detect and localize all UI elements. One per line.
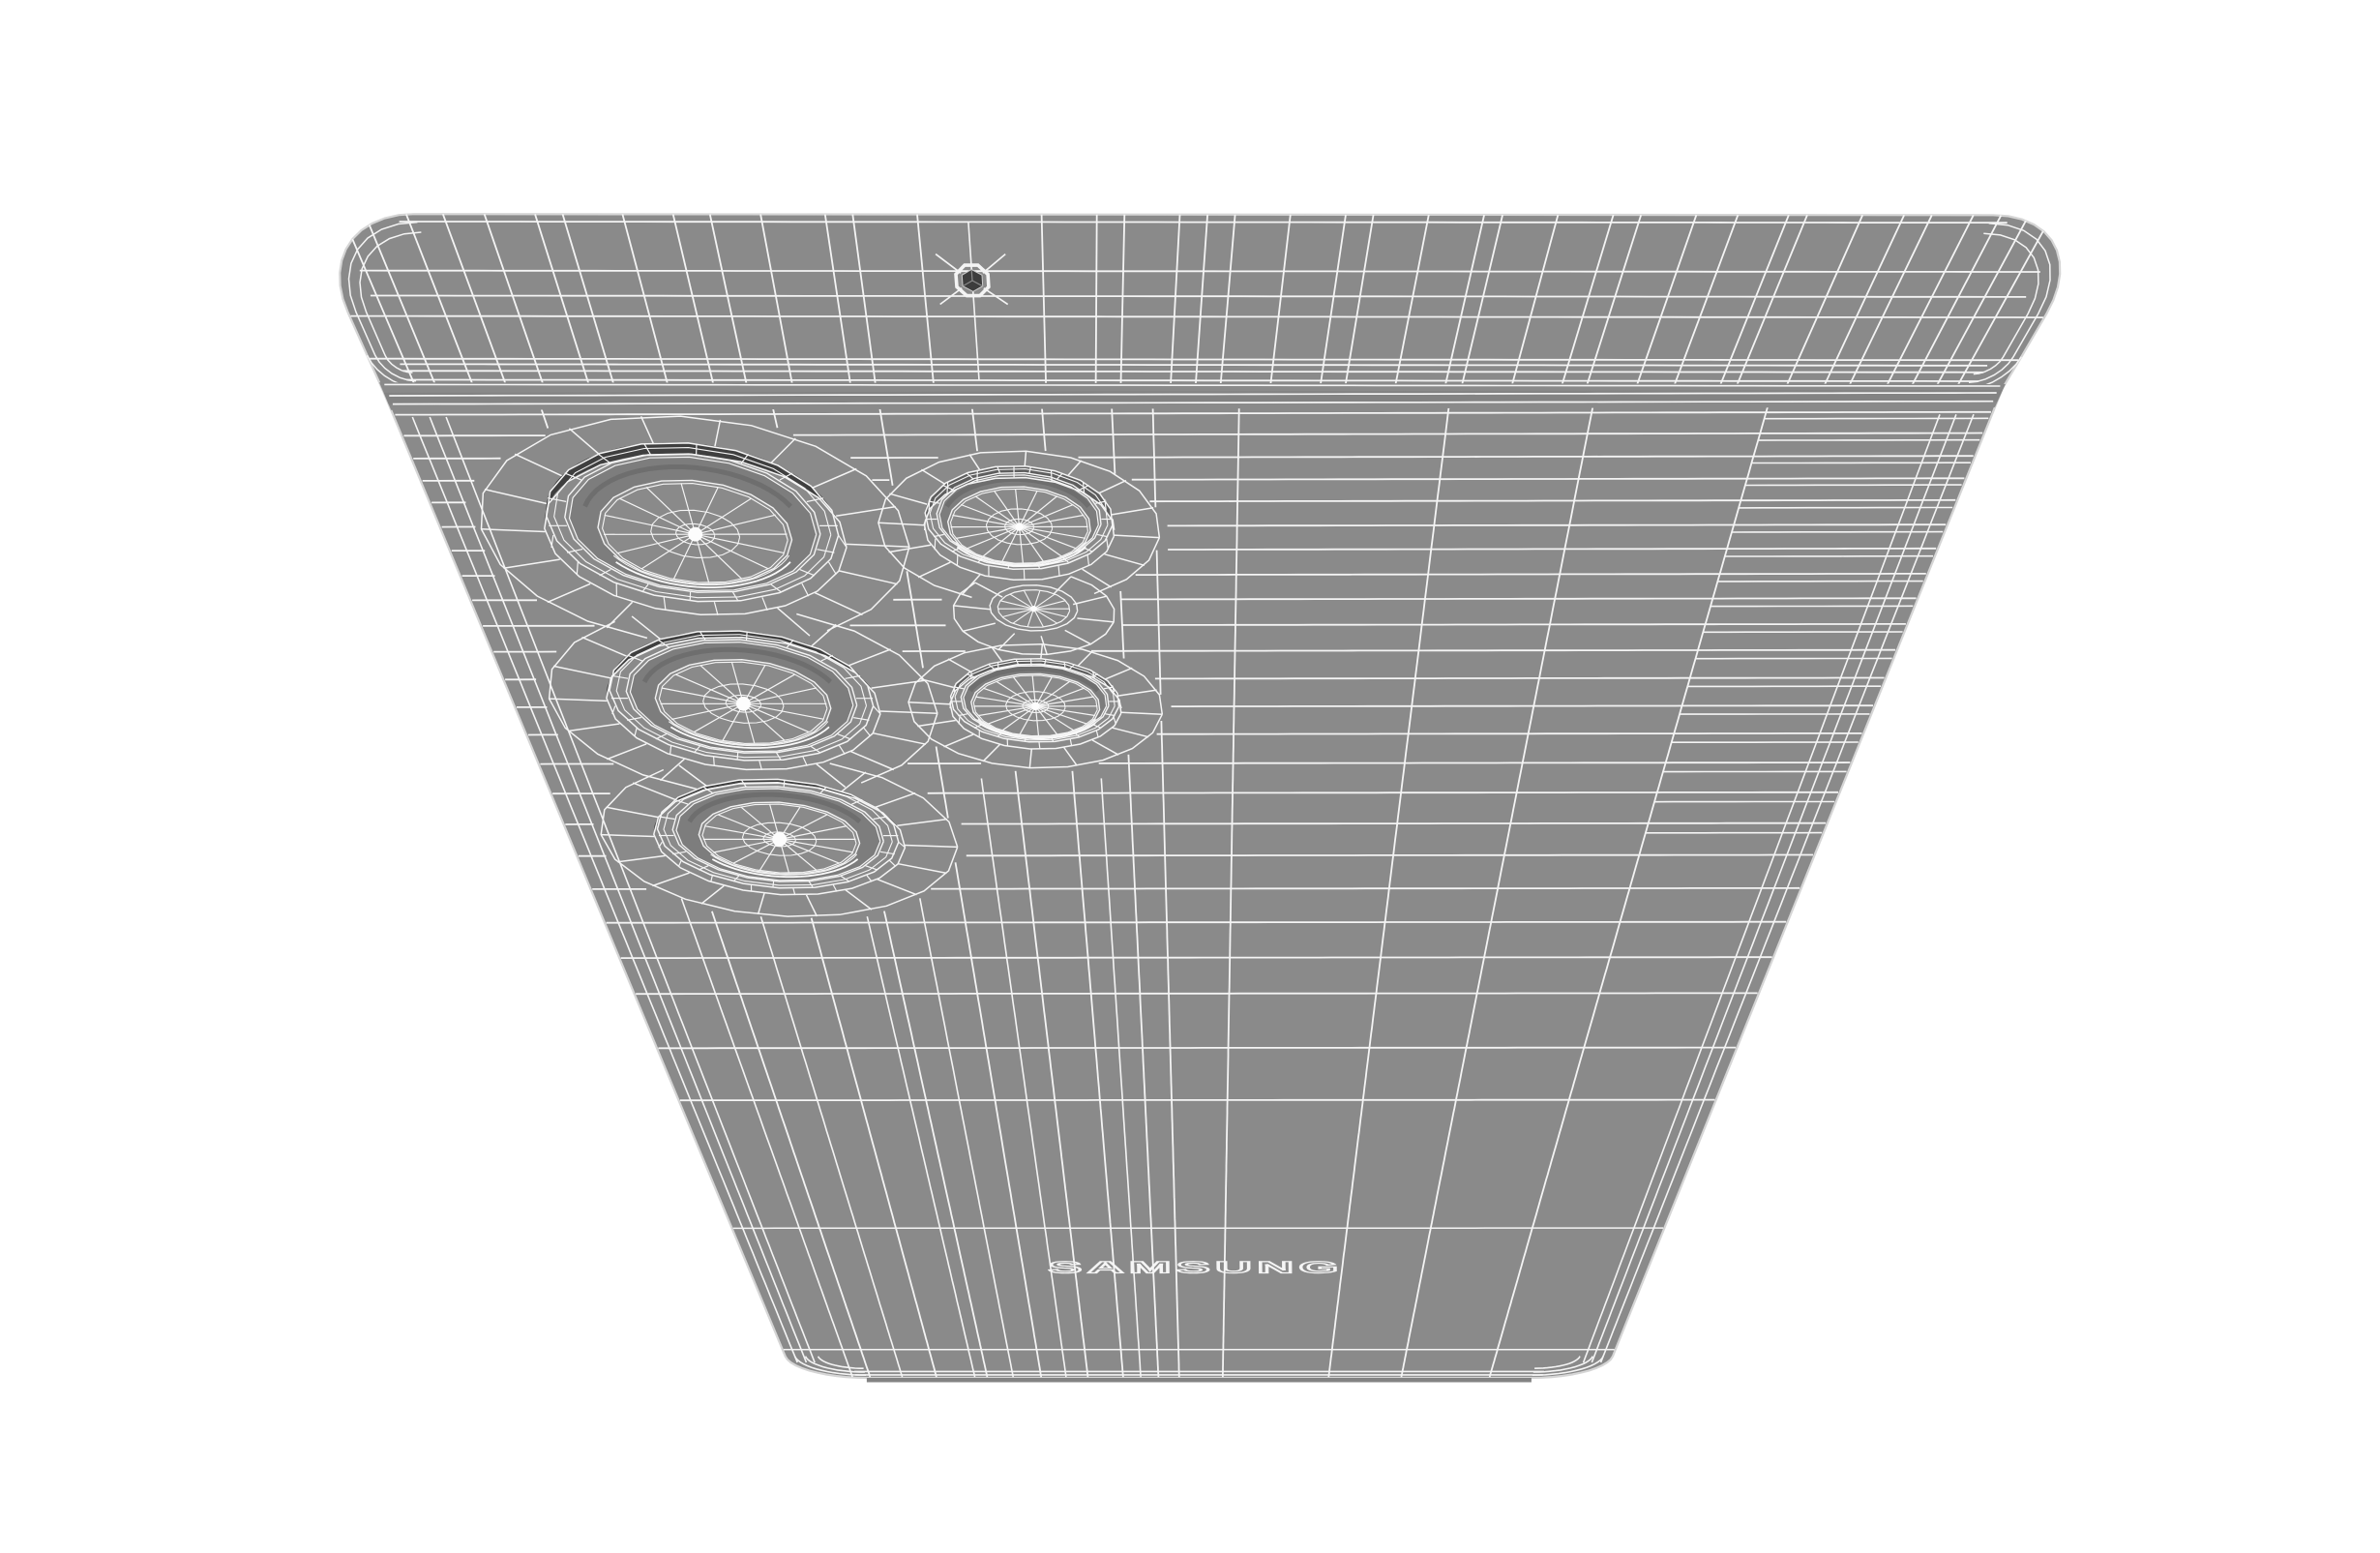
svg-text:SAMSUNG: SAMSUNG <box>1048 1259 1343 1277</box>
